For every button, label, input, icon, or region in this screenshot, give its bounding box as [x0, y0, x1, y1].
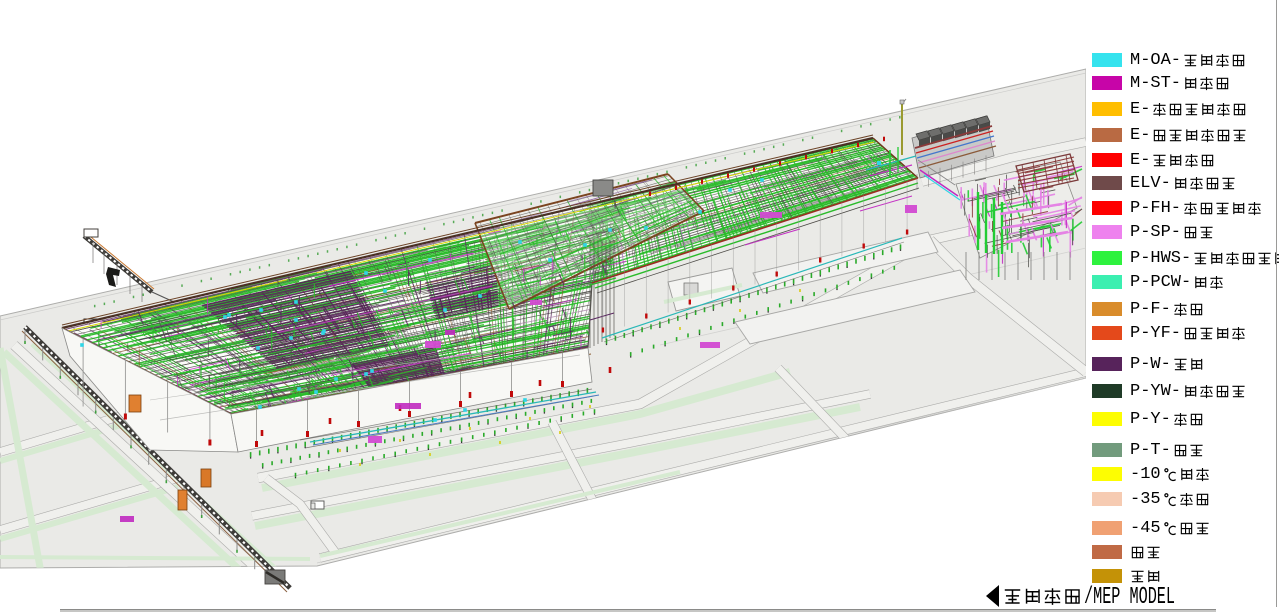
svg-text:/MEP MODEL: /MEP MODEL: [1084, 584, 1175, 609]
